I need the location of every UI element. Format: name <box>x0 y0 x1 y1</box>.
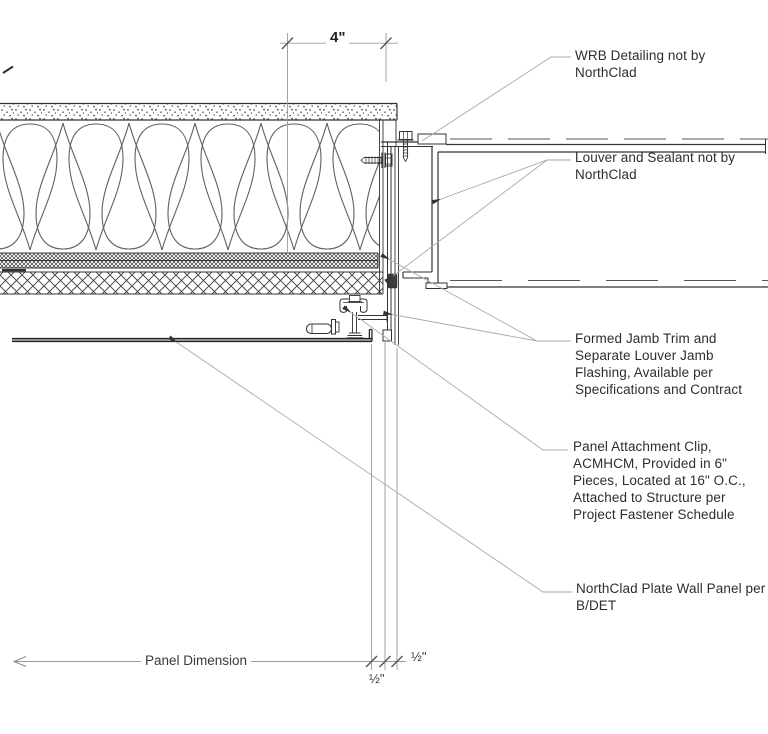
note-wall-panel: NorthClad Plate Wall Panel per B/DET <box>576 580 765 614</box>
attachment-clip <box>340 296 387 338</box>
note-louver-sealant: Louver and Sealant not by NorthClad <box>575 149 735 183</box>
note-wrb: WRB Detailing not by NorthClad <box>575 47 705 81</box>
leader-louver <box>441 160 571 199</box>
louver-frame <box>403 146 447 289</box>
note-jamb-trim: Formed Jamb Trim and Separate Louver Jam… <box>575 330 742 398</box>
batt-insulation <box>0 121 380 252</box>
note-attachment-clip: Panel Attachment Clip, ACMHCM, Provided … <box>573 438 746 523</box>
detail-drawing: WRB Detailing not by NorthClad Louver an… <box>0 0 768 734</box>
head-clip-block <box>418 134 446 144</box>
wall-sheathing-layer <box>0 104 397 121</box>
clip-fastener <box>307 320 340 335</box>
leader-sealant <box>393 160 547 276</box>
dim-panel-dimension: Panel Dimension <box>141 653 251 668</box>
louver-jamb-flashing <box>395 120 399 345</box>
dim-half-right: ½" <box>410 649 427 664</box>
jamb-trim <box>383 142 392 341</box>
membrane-band <box>0 253 378 271</box>
louver-bottom-blades <box>447 281 768 288</box>
leader-jamb-flashing <box>393 315 538 342</box>
stray-mark <box>3 67 13 74</box>
dim-4in: 4" <box>326 29 349 46</box>
leader-wrb <box>422 57 571 141</box>
dim-half-lower: ½" <box>368 671 385 686</box>
rigid-insulation-band <box>0 272 383 294</box>
dimension-bottom <box>14 342 406 670</box>
sealant-joint <box>388 274 397 288</box>
leader-panel <box>177 343 572 593</box>
